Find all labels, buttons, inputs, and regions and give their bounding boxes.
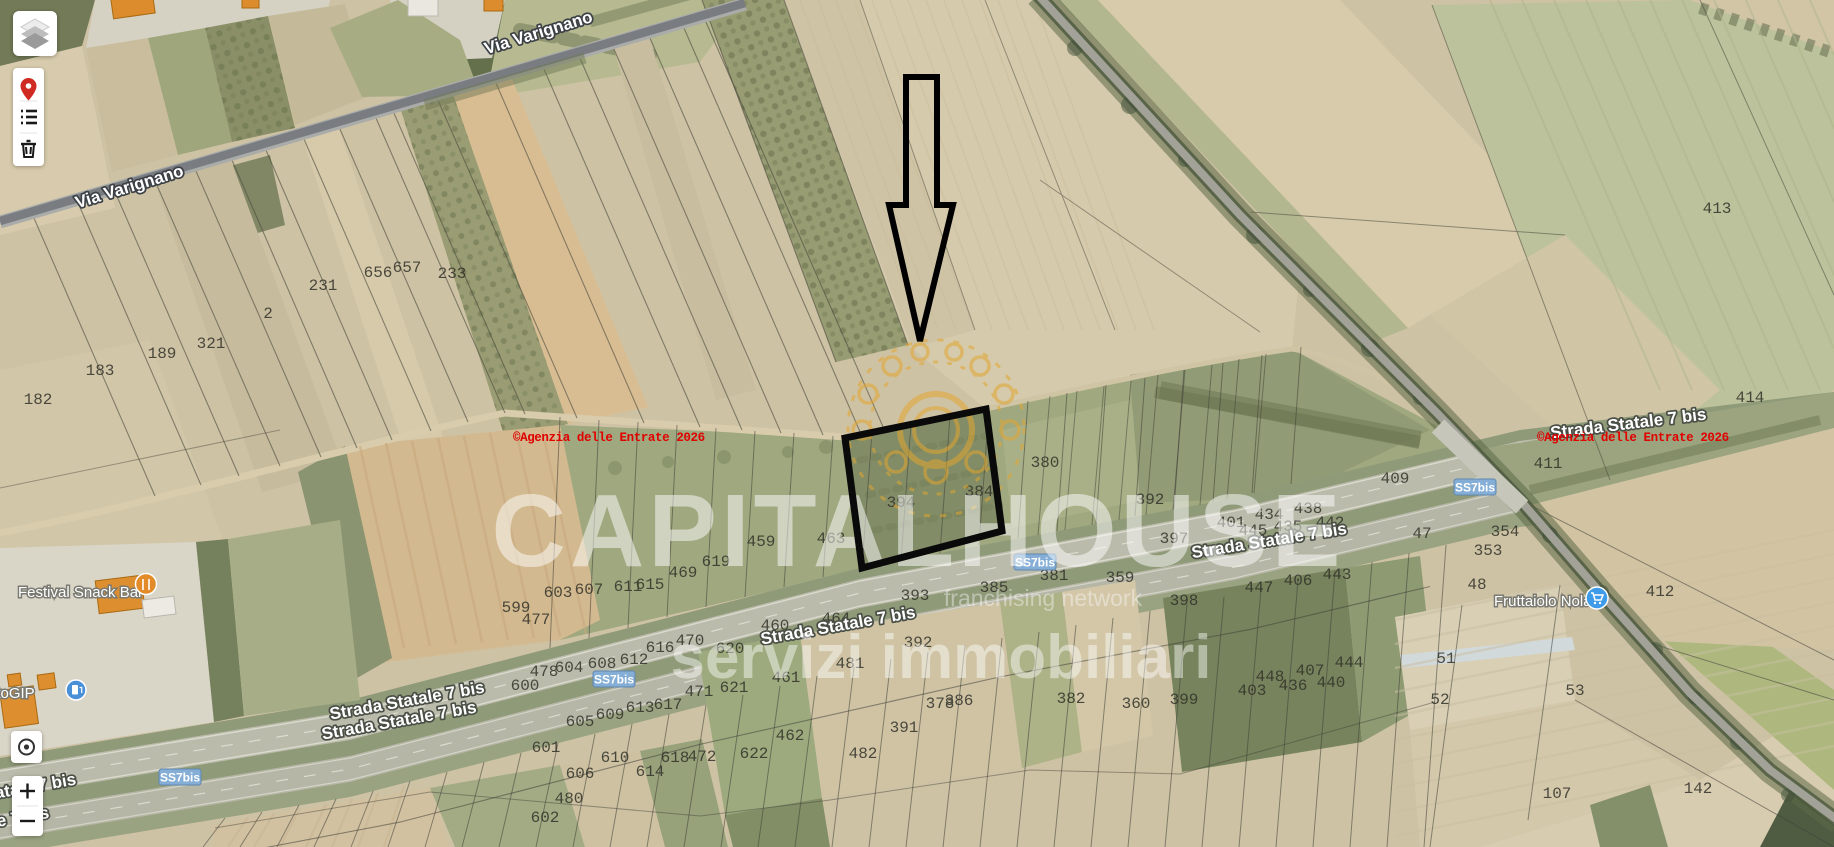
svg-text:107: 107 — [1543, 785, 1572, 803]
svg-text:412: 412 — [1646, 583, 1675, 601]
svg-text:657: 657 — [393, 259, 422, 277]
svg-text:353: 353 — [1474, 542, 1503, 560]
svg-text:601: 601 — [532, 739, 561, 757]
svg-text:393: 393 — [901, 587, 930, 605]
svg-text:440: 440 — [1317, 674, 1346, 692]
svg-text:382: 382 — [1057, 690, 1086, 708]
svg-text:482: 482 — [849, 745, 878, 763]
svg-text:52: 52 — [1430, 691, 1449, 709]
svg-text:47: 47 — [1412, 525, 1431, 543]
svg-text:606: 606 — [566, 765, 595, 783]
svg-text:Festival Snack Bar: Festival Snack Bar — [18, 584, 143, 601]
svg-text:142: 142 — [1684, 780, 1713, 798]
svg-text:©Agenzia delle Entrate 2026: ©Agenzia delle Entrate 2026 — [513, 431, 705, 445]
svg-text:477: 477 — [522, 611, 551, 629]
svg-text:409: 409 — [1381, 470, 1410, 488]
svg-text:SS7bis: SS7bis — [160, 771, 200, 785]
svg-text:622: 622 — [740, 745, 769, 763]
svg-text:480: 480 — [555, 790, 584, 808]
svg-text:321: 321 — [197, 335, 226, 353]
svg-text:613: 613 — [626, 699, 655, 717]
svg-text:605: 605 — [566, 713, 595, 731]
svg-text:411: 411 — [1534, 455, 1563, 473]
svg-text:386: 386 — [945, 692, 974, 710]
svg-text:398: 398 — [1170, 592, 1199, 610]
svg-text:231: 231 — [309, 277, 338, 295]
svg-text:608: 608 — [588, 655, 617, 673]
svg-text:183: 183 — [86, 362, 115, 380]
svg-text:462: 462 — [776, 727, 805, 745]
svg-text:391: 391 — [890, 719, 919, 737]
svg-text:609: 609 — [596, 706, 625, 724]
svg-text:CAPITALHOUSE: CAPITALHOUSE — [492, 473, 1345, 588]
svg-text:354: 354 — [1491, 523, 1520, 541]
svg-text:444: 444 — [1335, 654, 1364, 672]
svg-text:610: 610 — [601, 749, 630, 767]
svg-text:SS7bis: SS7bis — [1455, 481, 1495, 495]
svg-text:51: 51 — [1436, 650, 1455, 668]
svg-text:399: 399 — [1170, 691, 1199, 709]
svg-text:servizi immobiliari: servizi immobiliari — [671, 623, 1212, 692]
svg-text:380: 380 — [1031, 454, 1060, 472]
svg-text:franchising network: franchising network — [944, 585, 1143, 611]
svg-text:360: 360 — [1122, 695, 1151, 713]
svg-text:617: 617 — [654, 696, 683, 714]
svg-text:utoGIP: utoGIP — [0, 685, 35, 702]
svg-text:413: 413 — [1703, 200, 1732, 218]
svg-text:182: 182 — [24, 391, 53, 409]
svg-text:604: 604 — [555, 659, 584, 677]
svg-text:618: 618 — [661, 749, 690, 767]
svg-text:2: 2 — [263, 305, 273, 323]
svg-text:414: 414 — [1736, 389, 1765, 407]
svg-text:656: 656 — [364, 264, 393, 282]
svg-text:602: 602 — [531, 809, 560, 827]
svg-text:472: 472 — [688, 748, 717, 766]
svg-text:©Agenzia delle Entrate 2026: ©Agenzia delle Entrate 2026 — [1537, 431, 1729, 445]
svg-text:SS7bis: SS7bis — [594, 673, 634, 687]
svg-text:48: 48 — [1467, 576, 1486, 594]
svg-text:612: 612 — [620, 651, 649, 669]
svg-text:189: 189 — [148, 345, 177, 363]
svg-text:53: 53 — [1565, 682, 1584, 700]
svg-text:233: 233 — [438, 265, 467, 283]
svg-text:Fruttaiolo Nola: Fruttaiolo Nola — [1494, 593, 1592, 610]
svg-text:600: 600 — [511, 677, 540, 695]
